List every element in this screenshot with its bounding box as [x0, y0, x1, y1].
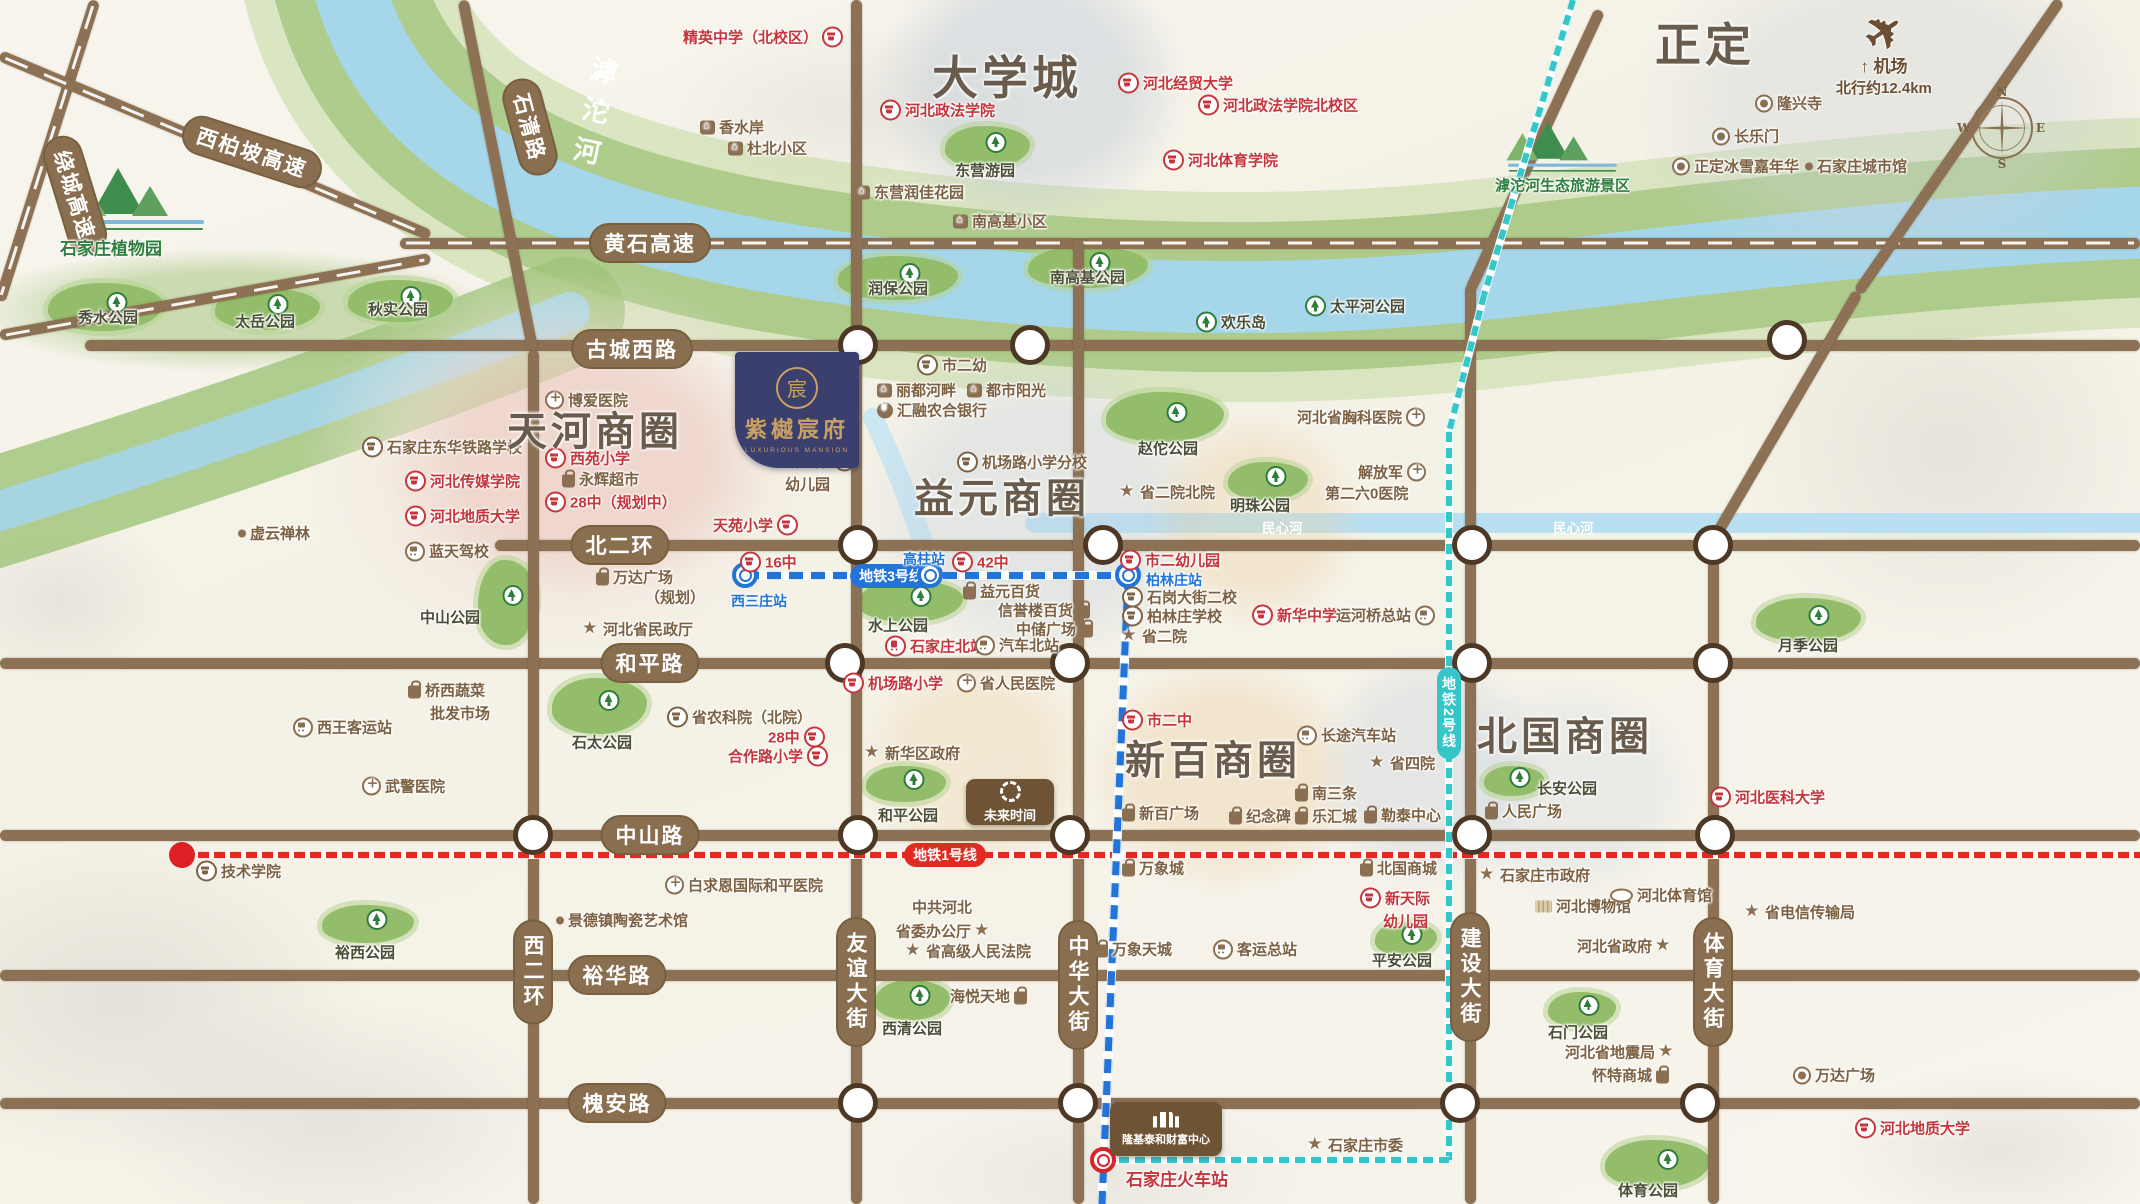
poi-text: 南高基小区: [972, 211, 1047, 232]
house-icon: [967, 383, 982, 397]
hospital-icon: [1407, 463, 1426, 482]
mall-icon: [1364, 811, 1377, 824]
road-label: 建设大街: [1450, 912, 1490, 1042]
poi-text: 批发市场: [430, 703, 490, 724]
school-red-icon: [1710, 787, 1731, 808]
poi-text: 河北政法学院北校区: [1223, 95, 1358, 116]
tree-icon: [367, 909, 388, 935]
park-label: 秀水公园: [78, 307, 138, 328]
poi-label: 正定冰雪嘉年华: [1672, 156, 1799, 177]
poi-label: 省高级人民法院: [906, 941, 1031, 962]
poi-label: 机场路小学: [843, 673, 943, 694]
poi-label: 南高基小区: [953, 211, 1047, 232]
compass-w: W: [1957, 121, 1970, 135]
road-intersection: [1440, 1083, 1480, 1123]
house-icon: [728, 141, 743, 155]
bus-icon: [1415, 605, 1435, 625]
park-label: 秋实公园: [368, 299, 428, 320]
poi-text: 正定冰雪嘉年华: [1694, 156, 1799, 177]
mall-icon: [1014, 992, 1027, 1005]
poi-label: 天苑小学: [713, 515, 798, 536]
road-label: 友谊大街: [836, 917, 876, 1047]
poi-text: 省人民医院: [980, 673, 1055, 694]
poi-text: 省委办公厅: [896, 921, 971, 942]
poi-text: 石家庄市政府: [1500, 865, 1590, 886]
longji-name: 隆基泰和财富中心: [1122, 1131, 1210, 1147]
poi-label: 批发市场: [430, 703, 490, 724]
mall-icon: [1122, 864, 1135, 877]
road-intersection: [1010, 325, 1050, 365]
poi-label: 石家庄北站: [885, 636, 985, 657]
road-label: 中山路: [601, 815, 700, 855]
poi-label: 海悦天地: [950, 986, 1027, 1007]
school-red-icon: [843, 673, 864, 694]
poi-label: 石岗大街二校: [1122, 587, 1237, 608]
school-brown-icon: [362, 437, 383, 458]
road-intersection: [838, 815, 878, 855]
road-label: 古城西路: [571, 329, 693, 369]
road-intersection: [513, 815, 553, 855]
bus-icon: [1213, 939, 1233, 959]
poi-text: 人民广场: [1502, 801, 1562, 822]
school-red-icon: [1163, 150, 1184, 171]
star-icon: [583, 621, 599, 637]
mall-icon: [1295, 789, 1308, 802]
poi-label: 益元百货: [963, 581, 1040, 602]
stadium-icon: [1610, 888, 1633, 902]
school-brown-icon: [917, 355, 938, 376]
tree-icon: [1266, 466, 1287, 492]
poi-label: 河北省地震局: [1565, 1042, 1675, 1063]
poi-label: 幼儿园: [785, 474, 830, 495]
poi-label: 省二院: [1122, 626, 1187, 647]
gear-icon: [1000, 781, 1021, 802]
school-brown-icon: [667, 707, 688, 728]
tree-icon: [904, 769, 925, 795]
poi-label: 河北省胸科医院: [1297, 407, 1425, 428]
poi-label: 桥西蔬菜: [408, 680, 485, 701]
tree-icon: [1510, 767, 1531, 793]
line2-badge: 地铁2号线: [1437, 667, 1461, 759]
park-label: 润保公园: [868, 278, 928, 299]
poi-label: 解放军: [1358, 462, 1426, 483]
line1-terminus-station: [169, 842, 195, 868]
compass-rose-icon: N E S W: [1963, 89, 2041, 167]
hospital-icon: [665, 876, 684, 895]
poi-text: 河北体育学院: [1188, 150, 1278, 171]
poi-text: 42中: [977, 552, 1009, 573]
mall-icon: [1656, 1071, 1669, 1084]
school-red-icon: [822, 27, 843, 48]
poi-label: 新华中学: [1252, 605, 1337, 626]
poi-label: 石家庄东华铁路学校: [362, 437, 522, 458]
road-intersection: [838, 1083, 878, 1123]
park-label: 长安公园: [1537, 778, 1597, 799]
region-title: 天河商圈: [507, 399, 683, 457]
future-time-logo: 未来时间: [966, 779, 1054, 825]
road-intersection: [1452, 525, 1492, 565]
poi-label: 武警医院: [362, 776, 445, 797]
poi-label: 河北省民政厅: [583, 619, 693, 640]
poi-label: 28中（规划中）: [545, 492, 677, 513]
hospital-icon: [957, 674, 976, 693]
tree-icon: [1578, 995, 1599, 1021]
poi-label: 河北政法学院北校区: [1198, 95, 1358, 116]
poi-text: 隆兴寺: [1777, 93, 1822, 114]
school-red-icon: [1252, 605, 1273, 626]
star-icon: [1659, 1044, 1675, 1060]
poi-label: 市二幼: [917, 355, 987, 376]
region-title: 益元商圈: [914, 466, 1090, 524]
hospital-icon: [362, 777, 381, 796]
airport-note: ✈ ↑ 机场 北行约12.4km: [1836, 12, 1932, 98]
poi-label: 南三条: [1295, 783, 1357, 804]
poi-text: 丽都河畔: [896, 380, 956, 401]
poi-text: 幼儿园: [785, 474, 830, 495]
poi-text: 滹沱河生态旅游景区: [1495, 175, 1630, 196]
poi-label: 精英中学（北校区）: [683, 27, 843, 48]
tree-icon: [1196, 312, 1217, 333]
poi-label: 合作路小学: [728, 746, 828, 767]
poi-text: 东营润佳花园: [874, 182, 964, 203]
poi-label: 丽都河畔: [877, 380, 956, 401]
poi-text: 市二幼: [942, 355, 987, 376]
poi-text: 新华区政府: [885, 743, 960, 764]
compass-e: E: [2036, 121, 2045, 135]
poi-text: 勒泰中心: [1381, 805, 1441, 826]
poi-label: 高柱站: [903, 549, 945, 569]
region-title: 北国商圈: [1477, 704, 1653, 762]
poi-label: 虚云禅林: [238, 523, 310, 544]
line1-badge: 地铁1号线: [904, 843, 986, 867]
poi-label: 新百广场: [1122, 803, 1199, 824]
poi-text: 新百广场: [1139, 803, 1199, 824]
poi-label: 河北地质大学: [405, 506, 520, 527]
poi-label: 西王客运站: [293, 717, 392, 738]
poi-label: 幼儿园: [1383, 911, 1428, 932]
poi-label: 香水岸: [700, 117, 764, 138]
poi-text: 河北省政府: [1577, 936, 1652, 957]
school-red-icon: [804, 727, 825, 748]
poi-text: 河北地质大学: [1880, 1118, 1970, 1139]
poi-label: 民心河: [1262, 517, 1303, 537]
poi-text: 长乐门: [1734, 126, 1779, 147]
poi-text: 汽车北站: [999, 635, 1059, 656]
star-icon: [1308, 1137, 1324, 1153]
poi-label: 市二幼儿园: [1120, 550, 1220, 571]
museum-icon: [1535, 900, 1552, 912]
school-red-icon: [405, 506, 426, 527]
mall-icon: [1095, 945, 1108, 958]
poi-text: 万达广场: [613, 567, 673, 588]
poi-label: 乐汇城: [1295, 806, 1357, 827]
poi-text: 海悦天地: [950, 986, 1010, 1007]
star-icon: [906, 943, 922, 959]
star-icon: [1480, 867, 1496, 883]
road-intersection: [1695, 815, 1735, 855]
map-canvas: 宸 紫樾宸府 LUXURIOUS MANSION 未来时间 隆基泰和财富中心 N…: [0, 0, 2140, 1204]
poi-label: 柏林庄学校: [1122, 606, 1222, 627]
poi-text: （规划）: [645, 587, 705, 608]
poi-label: 纪念碑: [1229, 806, 1291, 827]
poi-label: 隆兴寺: [1755, 93, 1822, 114]
poi-text: 第二六0医院: [1325, 483, 1408, 504]
school-red-icon: [545, 492, 566, 513]
building-icon: [1153, 1112, 1179, 1128]
poi-text: 合作路小学: [728, 746, 803, 767]
poi-text: 客运总站: [1237, 939, 1297, 960]
future-time-name: 未来时间: [984, 805, 1036, 824]
poi-label: 万象天城: [1095, 939, 1172, 960]
bank-icon: [877, 402, 893, 418]
tree-icon: [1658, 1149, 1679, 1175]
project-subtitle: LUXURIOUS MANSION: [745, 447, 849, 454]
poi-label: 万象城: [1122, 858, 1184, 879]
poi-label: 石家庄市政府: [1480, 865, 1590, 886]
poi-label: 万达广场: [1793, 1065, 1875, 1086]
road-label: 北二环: [571, 525, 670, 565]
project-name: 紫樾宸府: [745, 412, 849, 444]
school-red-icon: [1360, 888, 1381, 909]
poi-text: 白求恩国际和平医院: [688, 875, 823, 896]
poi-text: 柏林庄学校: [1147, 606, 1222, 627]
poi-text: 西王客运站: [317, 717, 392, 738]
poi-label: 28中: [768, 727, 825, 748]
tree-icon: [986, 132, 1007, 158]
poi-label: 16中: [740, 552, 797, 573]
poi-text: 益元百货: [980, 581, 1040, 602]
poi-text: 新天际: [1385, 888, 1430, 909]
poi-label: 42中: [952, 552, 1009, 573]
poi-text: 太平河公园: [1330, 296, 1405, 317]
star-icon: [865, 745, 881, 761]
poi-label: 省四院: [1370, 753, 1435, 774]
poi-label: 运河桥总站: [1336, 605, 1435, 626]
north-2nd-ring: [495, 540, 2140, 551]
house-icon: [953, 214, 968, 228]
poi-text: 河北省地震局: [1565, 1042, 1655, 1063]
mall-icon: [408, 686, 421, 699]
park-label: 中山公园: [420, 607, 480, 628]
poi-text: 万达广场: [1815, 1065, 1875, 1086]
poi-label: 省电信传输局: [1745, 902, 1855, 923]
road-intersection: [1693, 643, 1733, 683]
poi-text: 石家庄市委: [1328, 1135, 1403, 1156]
tree-icon: [599, 690, 620, 716]
poi-label: 石家庄火车站: [1126, 1166, 1228, 1191]
poi-label: 蓝天驾校: [405, 541, 489, 562]
poi-text: 16中: [765, 552, 797, 573]
poi-text: 南三条: [1312, 783, 1357, 804]
poi-text: 蓝天驾校: [429, 541, 489, 562]
tree-icon: [910, 985, 931, 1011]
house-icon: [855, 185, 870, 199]
poi-label: （规划）: [645, 587, 705, 608]
poi-text: 石家庄北站: [910, 636, 985, 657]
poi-label: 滹沱河生态旅游景区: [1495, 175, 1630, 196]
poi-text: 西三庄站: [731, 591, 787, 611]
project-seal-icon: 宸: [776, 367, 818, 409]
poi-label: 新天际: [1360, 888, 1430, 909]
poi-text: 技术学院: [221, 861, 281, 882]
school-red-icon: [880, 100, 901, 121]
line2-segment: [1103, 1156, 1449, 1164]
school-red-icon: [740, 552, 761, 573]
poi-text: 虚云禅林: [250, 523, 310, 544]
school-red-icon: [807, 746, 828, 767]
school-red-icon: [1120, 550, 1141, 571]
poi-label: 石家庄植物园: [60, 235, 162, 260]
star-icon: [1745, 904, 1761, 920]
poi-text: 河北地质大学: [430, 506, 520, 527]
road-label: 体育大街: [1693, 917, 1733, 1047]
school-red-icon: [952, 552, 973, 573]
poi-text: 欢乐岛: [1221, 312, 1266, 333]
poi-text: 万象城: [1139, 858, 1184, 879]
poi-label: 怀特商城: [1592, 1065, 1669, 1086]
poi-label: 第二六0医院: [1325, 483, 1408, 504]
compass-s: S: [1998, 157, 2007, 171]
school-red-icon: [1198, 95, 1219, 116]
poi-text: 省高级人民法院: [926, 941, 1031, 962]
school-brown-icon: [1122, 606, 1143, 627]
poi-text: 省电信传输局: [1765, 902, 1855, 923]
mall-icon: [562, 475, 575, 488]
poi-label: 都市阳光: [967, 380, 1046, 401]
poi-label: 省二院北院: [1120, 482, 1215, 503]
poi-text: 石岗大街二校: [1147, 587, 1237, 608]
poi-label: 河北体育馆: [1610, 885, 1712, 906]
road-intersection: [1680, 1083, 1720, 1123]
park-label: 石门公园: [1548, 1022, 1608, 1043]
poi-text: 北国商城: [1377, 858, 1437, 879]
poi-text: 中共河北: [912, 897, 972, 918]
poi-label: 白求恩国际和平医院: [665, 875, 823, 896]
road-label: 裕华路: [568, 955, 667, 995]
poi-label: 杜北小区: [728, 138, 807, 159]
park-label: 石太公园: [572, 732, 632, 753]
road-intersection: [1083, 525, 1123, 565]
park-label: 体育公园: [1618, 1180, 1678, 1201]
poi-text: 桥西蔬菜: [425, 680, 485, 701]
poi-label: 长乐门: [1712, 126, 1779, 147]
poi-text: 省四院: [1390, 753, 1435, 774]
poi-text: 市二幼儿园: [1145, 550, 1220, 571]
poi-label: 西三庄站: [731, 591, 787, 611]
poi-text: 信誉楼百货: [998, 600, 1073, 621]
park-label: 西清公园: [882, 1018, 942, 1039]
hospital-icon: [1406, 408, 1425, 427]
poi-text: 运河桥总站: [1336, 605, 1411, 626]
mall-icon: [596, 573, 609, 586]
dot-icon: [556, 916, 564, 924]
park-label: 平安公园: [1372, 950, 1432, 971]
poi-label: 石家庄城市馆: [1805, 156, 1907, 177]
region-title: 大学城: [932, 42, 1082, 108]
road-label: 中华大街: [1058, 920, 1098, 1050]
poi-text: 长途汽车站: [1321, 725, 1396, 746]
poi-label: 中共河北: [912, 897, 972, 918]
poi-label: 汇融农合银行: [877, 400, 987, 421]
tree-icon: [1166, 402, 1187, 428]
poi-text: 幼儿园: [1383, 911, 1428, 932]
poi-text: 永辉超市: [579, 469, 639, 490]
poi-text: 河北省胸科医院: [1297, 407, 1402, 428]
poi-label: 新华区政府: [865, 743, 960, 764]
star-icon: [1122, 628, 1138, 644]
school-brown-icon: [196, 861, 217, 882]
poi-label: 景德镇陶瓷艺术馆: [556, 910, 688, 931]
bus-icon: [293, 717, 313, 737]
star-icon: [1656, 938, 1672, 954]
park-label: 赵佗公园: [1138, 438, 1198, 459]
poi-label: 省委办公厅: [896, 921, 991, 942]
poi-text: 省农科院（北院）: [692, 707, 812, 728]
poi-label: 河北医科大学: [1710, 787, 1825, 808]
road-intersection: [1058, 1083, 1098, 1123]
mall-icon: [1360, 864, 1373, 877]
poi-text: 纪念碑: [1246, 806, 1291, 827]
poi-label: 长途汽车站: [1297, 725, 1396, 746]
jianshe-street: [1465, 285, 1476, 1204]
poi-label: 汽车北站: [975, 635, 1059, 656]
road-intersection: [1767, 320, 1807, 360]
poi-text: 河北体育馆: [1637, 885, 1712, 906]
park-label: 裕西公园: [335, 942, 395, 963]
poi-text: 汇融农合银行: [897, 400, 987, 421]
longji-fortune-center-logo: 隆基泰和财富中心: [1110, 1102, 1222, 1156]
poi-text: 高柱站: [903, 549, 945, 569]
poi-text: 杜北小区: [747, 138, 807, 159]
poi-label: 客运总站: [1213, 939, 1297, 960]
tree-icon: [1809, 605, 1830, 631]
school-red-icon: [405, 471, 426, 492]
park-label: 东营游园: [955, 160, 1015, 181]
poi-label: 东营润佳花园: [855, 182, 964, 203]
poi-text: 乐汇城: [1312, 806, 1357, 827]
poi-text: 景德镇陶瓷艺术馆: [568, 910, 688, 931]
poi-text: 省二院北院: [1140, 482, 1215, 503]
poi-text: 天苑小学: [713, 515, 773, 536]
park-label: 月季公园: [1778, 635, 1838, 656]
region-title: 正定: [1655, 9, 1755, 75]
poi-text: 河北省民政厅: [603, 619, 693, 640]
poi-text: 河北经贸大学: [1143, 73, 1233, 94]
poi-text: 都市阳光: [986, 380, 1046, 401]
poi-label: 北国商城: [1360, 858, 1437, 879]
poi-label: 勒泰中心: [1364, 805, 1441, 826]
park-label: 南高基公园: [1050, 267, 1125, 288]
poi-label: 省人民医院: [957, 673, 1055, 694]
road-label: 和平路: [601, 643, 700, 683]
poi-label: 太平河公园: [1305, 296, 1405, 317]
road-intersection: [1693, 525, 1733, 565]
bus-icon: [975, 635, 995, 655]
mall-icon: [1485, 807, 1498, 820]
region-title: 新百商圈: [1125, 728, 1301, 786]
ring-icon: [1755, 94, 1773, 112]
mall-icon: [1080, 625, 1093, 638]
airport-distance: 北行约12.4km: [1836, 77, 1932, 98]
poi-text: 怀特商城: [1592, 1065, 1652, 1086]
poi-label: 河北经贸大学: [1118, 73, 1233, 94]
school-brown-icon: [1122, 587, 1143, 608]
poi-text: 石家庄植物园: [60, 235, 162, 260]
star-icon: [1120, 484, 1136, 500]
poi-text: 28中（规划中）: [570, 492, 677, 513]
poi-label: 永辉超市: [562, 469, 639, 490]
park-label: 太岳公园: [235, 311, 295, 332]
